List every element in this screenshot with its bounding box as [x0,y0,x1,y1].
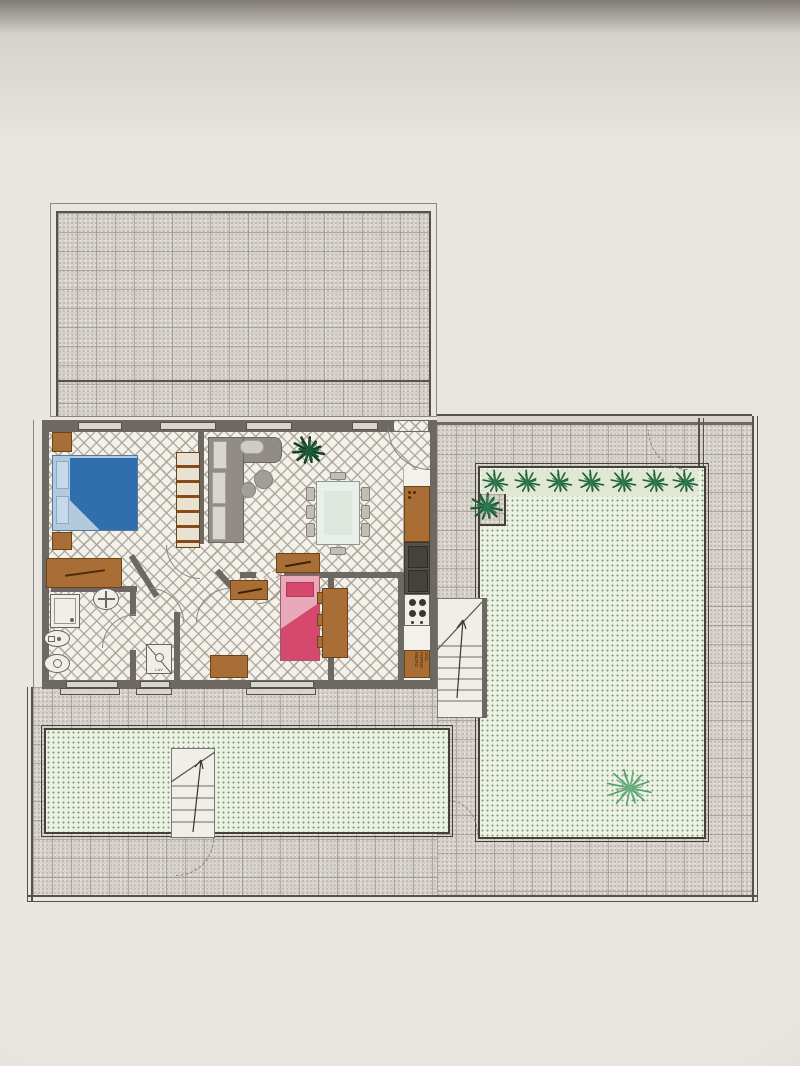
kitchen-cabinet [404,486,430,542]
window [246,422,292,430]
apartment-left-wall [42,420,49,689]
low-cabinet [210,655,248,678]
wardrobe-door-handle [317,592,323,604]
floor-plan-photo: COL. FORNO MICRO LAV [0,0,800,1066]
dresser [46,558,122,588]
sofa-cushion [212,472,226,504]
window-sill [136,688,172,695]
hedge-shrub-icon [578,469,605,496]
window-sill [246,688,316,695]
kitchen-sink-unit [404,542,430,594]
sofa-cushion [213,441,227,469]
garden-fence-post [698,418,704,470]
bathroom-right-wall-lower [130,650,136,682]
bottom-left-border [27,687,33,901]
nightstand [52,532,72,550]
laundry-niche-wall [174,612,180,682]
terrace-divider-line [58,380,429,382]
dining-chair [306,523,315,537]
cooktop [404,594,430,626]
toilet [44,654,70,673]
window [140,681,170,688]
garden-lawn [478,466,706,839]
hedge-shrub-icon [642,469,669,496]
sofa-cushion [212,506,226,540]
pink-blanket [281,629,319,660]
window [160,422,216,430]
pillow [56,461,69,489]
hedge-shrub-icon [546,469,573,496]
hedge-shrub-icon [610,469,637,496]
lower-staircase [171,748,215,838]
wardrobe [322,588,348,658]
apartment-right-wall [430,420,437,682]
sofa-armrest [240,440,264,454]
window-sill [60,688,120,695]
bottom-border [27,895,758,902]
dining-table [316,481,360,545]
bidet [44,630,70,647]
desk [276,553,320,573]
oven-column-label: COL. FORNO MICRO [413,652,428,677]
oven-column: COL. FORNO MICRO [404,650,430,678]
dining-chair [330,472,346,480]
window [250,681,314,688]
double-bed [52,455,138,531]
washing-machine-label: LAV [147,667,171,672]
garden-tree-icon [606,764,654,812]
dining-chair [361,505,370,519]
kitchen-side-staircase [437,598,487,718]
round-side-table [240,482,256,498]
garden-top-wall [437,414,752,425]
dining-chair [361,523,370,537]
blanket-fold [70,500,100,530]
nightstand [52,432,72,452]
wardrobe-door-handle [317,636,323,648]
lower-lawn [44,728,450,834]
dining-chair [306,487,315,501]
washbasin [93,588,119,610]
blanket-fold [281,603,319,629]
corner-bush-icon [470,490,504,524]
hedge-shrub-icon [514,469,541,496]
bathroom-right-wall-upper [130,586,136,616]
pillow [286,582,314,597]
window [352,422,378,430]
garden-right-border [752,416,758,902]
shower [50,594,80,628]
window [78,422,122,430]
desk [230,580,268,600]
dining-chair [361,487,370,501]
dining-chair [306,505,315,519]
washing-machine: LAV [146,644,172,674]
pillow [56,496,69,524]
single-bed [280,575,320,661]
window [66,681,118,688]
round-side-table [254,470,273,489]
indoor-plant-icon [292,434,326,468]
wardrobe-hanger-rail [176,452,200,548]
upper-terrace-floor [56,211,431,416]
property-line-left [33,420,34,688]
dining-chair [330,547,346,555]
hedge-shrub-icon [672,469,699,496]
upper-terrace [50,203,437,417]
wardrobe-door-handle [317,614,323,626]
